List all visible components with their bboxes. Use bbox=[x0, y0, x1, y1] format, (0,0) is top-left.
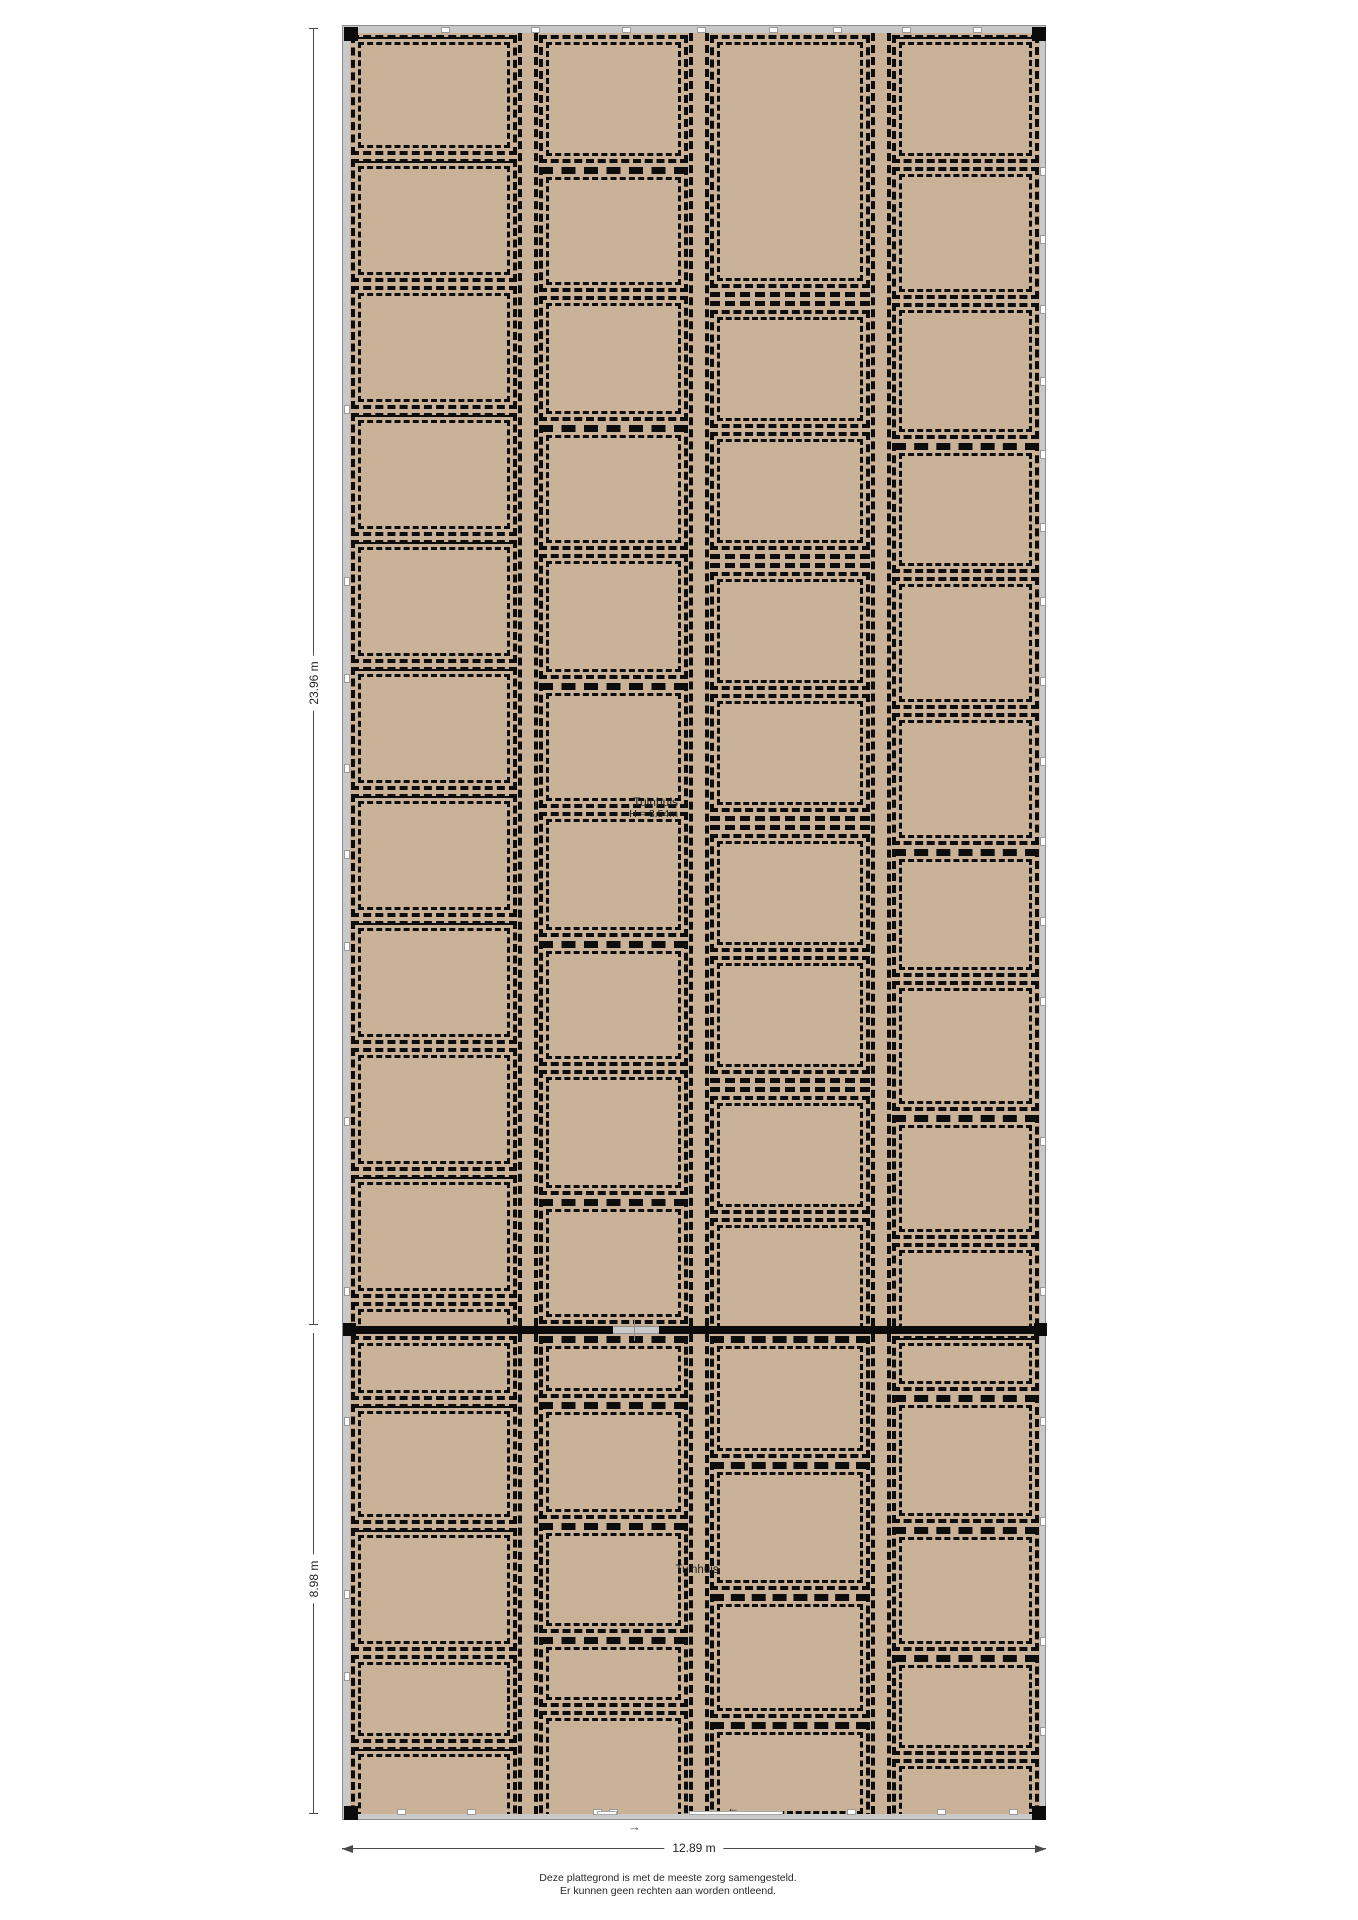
plot-cell bbox=[710, 694, 870, 812]
plot-cell bbox=[892, 167, 1039, 299]
wall-tick bbox=[1040, 1417, 1046, 1426]
plot-cell bbox=[710, 1218, 870, 1326]
wall-tick bbox=[1040, 305, 1046, 314]
divider-end-block bbox=[343, 1323, 356, 1336]
divider-end-block bbox=[1034, 1323, 1047, 1336]
wall-tick bbox=[467, 1809, 476, 1815]
plot-cell bbox=[892, 1336, 1039, 1391]
plot-cell bbox=[710, 1594, 870, 1718]
plot-cell bbox=[539, 35, 688, 163]
plot-cell bbox=[892, 713, 1039, 845]
wall-tick bbox=[697, 27, 706, 33]
plot-cell bbox=[539, 554, 688, 679]
plot-cell bbox=[892, 443, 1039, 573]
column-separator bbox=[518, 33, 538, 1326]
wall-tick bbox=[1040, 167, 1046, 176]
plot-cell bbox=[351, 1175, 517, 1298]
plot-cell bbox=[892, 1655, 1039, 1755]
plot-cell bbox=[710, 1336, 870, 1458]
wall-tick bbox=[344, 674, 350, 683]
wall-tick bbox=[531, 27, 540, 33]
wall-tick bbox=[937, 1809, 946, 1815]
room-label-tuinhuis-lower: Tuinhuis bbox=[675, 1564, 718, 1576]
plot-column bbox=[538, 33, 689, 1326]
plot-cell bbox=[710, 432, 870, 550]
dimension-label-bottom: 12.89 m bbox=[664, 1841, 723, 1855]
dimension-arrow-right-icon bbox=[1035, 1845, 1046, 1853]
plot-cell bbox=[351, 921, 517, 1044]
wall-opening bbox=[689, 1811, 783, 1815]
disclaimer-text: Deze plattegrond is met de meeste zorg s… bbox=[539, 1872, 796, 1898]
wall-tick bbox=[1040, 677, 1046, 686]
plot-cell bbox=[892, 577, 1039, 709]
wall-tick bbox=[397, 1809, 406, 1815]
wall-tick bbox=[1040, 917, 1046, 926]
plot-cell bbox=[892, 1243, 1039, 1326]
plot-cell bbox=[539, 1199, 688, 1324]
plot-column bbox=[350, 33, 518, 1326]
wall-tick bbox=[1040, 1287, 1046, 1296]
wall-tick bbox=[344, 764, 350, 773]
wall-tick bbox=[344, 850, 350, 859]
upper-section-grid bbox=[350, 33, 1040, 1326]
plot-cell bbox=[710, 834, 870, 952]
wall-tick bbox=[344, 405, 350, 414]
dimension-end-tick bbox=[309, 28, 318, 29]
plot-cell bbox=[351, 794, 517, 917]
wall-tick bbox=[1040, 523, 1046, 532]
wall-tick bbox=[902, 27, 911, 33]
corner-block bbox=[1032, 1806, 1046, 1820]
wall-tick bbox=[1040, 597, 1046, 606]
plot-cell bbox=[351, 159, 517, 282]
column-separator bbox=[518, 1334, 538, 1814]
wall-tick bbox=[1040, 1137, 1046, 1146]
wall-tick bbox=[344, 577, 350, 586]
plot-cell bbox=[351, 35, 517, 155]
plot-cell bbox=[351, 1302, 517, 1326]
plot-cell bbox=[539, 941, 688, 1066]
wall-tick bbox=[344, 942, 350, 951]
divider-wall bbox=[343, 1326, 1047, 1334]
plot-cell bbox=[710, 1462, 870, 1590]
plot-column bbox=[891, 1334, 1040, 1814]
wall-tick bbox=[344, 1590, 350, 1599]
dimension-label-left-lower: 8.98 m bbox=[305, 1555, 323, 1604]
plot-cell bbox=[539, 1523, 688, 1633]
column-separator bbox=[871, 1334, 891, 1814]
plot-cell bbox=[351, 1747, 517, 1814]
plot-cell bbox=[351, 667, 517, 790]
wall-tick bbox=[1040, 1637, 1046, 1646]
wall-tick bbox=[1009, 1809, 1018, 1815]
plot-cell bbox=[710, 1096, 870, 1214]
wall-tick bbox=[344, 1672, 350, 1681]
plot-cell bbox=[710, 956, 870, 1074]
plot-column bbox=[538, 1334, 689, 1814]
plot-cell bbox=[892, 1527, 1039, 1651]
plot-cell bbox=[351, 1655, 517, 1743]
plot-cell bbox=[892, 1395, 1039, 1523]
divider-door-tick bbox=[634, 1319, 635, 1341]
room-label-tuinhuis-upper: Tuinhuis H = 3.54m bbox=[629, 796, 678, 820]
wall-tick bbox=[1040, 377, 1046, 386]
wall-tick bbox=[1040, 757, 1046, 766]
plot-cell bbox=[892, 981, 1039, 1111]
plot-band bbox=[710, 1078, 870, 1092]
plot-cell bbox=[539, 1336, 688, 1398]
disclaimer-line-2: Er kunnen geen rechten aan worden ontlee… bbox=[539, 1885, 796, 1898]
wall-tick bbox=[769, 27, 778, 33]
wall-tick bbox=[622, 27, 631, 33]
plot-column bbox=[350, 1334, 518, 1814]
plot-cell bbox=[539, 683, 688, 808]
wall-tick bbox=[973, 27, 982, 33]
plot-cell bbox=[539, 1402, 688, 1519]
corner-block bbox=[1032, 27, 1046, 41]
corner-block bbox=[344, 27, 358, 41]
floorplan-outline: ← bbox=[342, 25, 1046, 1820]
divider-door-gap bbox=[613, 1326, 659, 1334]
plot-band bbox=[710, 816, 870, 830]
plot-cell bbox=[892, 1115, 1039, 1239]
plot-cell bbox=[539, 1070, 688, 1195]
plot-column bbox=[709, 33, 871, 1326]
wall-tick bbox=[1040, 837, 1046, 846]
plot-cell bbox=[539, 1711, 688, 1814]
plot-cell bbox=[892, 1759, 1039, 1814]
plot-cell bbox=[892, 303, 1039, 439]
wall-opening bbox=[597, 1811, 617, 1815]
plot-band bbox=[710, 292, 870, 306]
plot-cell bbox=[351, 1048, 517, 1171]
plot-cell bbox=[892, 849, 1039, 977]
plot-cell bbox=[351, 540, 517, 663]
dimension-end-tick bbox=[309, 1324, 318, 1325]
plot-cell bbox=[710, 572, 870, 690]
plot-cell bbox=[710, 310, 870, 428]
wall-tick bbox=[344, 1287, 350, 1296]
plot-cell bbox=[892, 35, 1039, 163]
wall-tick bbox=[1040, 1517, 1046, 1526]
disclaimer-line-1: Deze plattegrond is met de meeste zorg s… bbox=[539, 1872, 796, 1885]
wall-tick bbox=[344, 1117, 350, 1126]
dimension-label-left-upper: 23.96 m bbox=[305, 655, 323, 710]
wall-tick bbox=[344, 1417, 350, 1426]
entrance-arrow-below-icon: → bbox=[628, 1822, 641, 1832]
wall-tick bbox=[1040, 997, 1046, 1006]
corner-block bbox=[344, 1806, 358, 1820]
plot-cell bbox=[351, 1336, 517, 1400]
plot-cell bbox=[539, 296, 688, 421]
wall-tick bbox=[847, 1809, 856, 1815]
plot-cell bbox=[710, 35, 870, 288]
plot-cell bbox=[539, 812, 688, 937]
wall-tick bbox=[833, 27, 842, 33]
plot-cell bbox=[539, 1637, 688, 1707]
plot-cell bbox=[539, 425, 688, 550]
wall-tick bbox=[1040, 235, 1046, 244]
plot-cell bbox=[351, 286, 517, 409]
wall-tick bbox=[441, 27, 450, 33]
plot-cell bbox=[351, 1404, 517, 1524]
floorplan-canvas: 23.96 m 8.98 m 12.89 m ← Tuinhuis H = 3.… bbox=[0, 0, 1358, 1920]
column-separator bbox=[871, 33, 891, 1326]
wall-tick bbox=[1040, 450, 1046, 459]
plot-cell bbox=[351, 413, 517, 536]
dimension-end-tick bbox=[309, 1813, 318, 1814]
room-label-name: Tuinhuis bbox=[629, 796, 678, 808]
wall-tick bbox=[1040, 1727, 1046, 1736]
plot-column bbox=[709, 1334, 871, 1814]
room-label-height: H = 3.54m bbox=[629, 808, 678, 820]
plot-band bbox=[710, 554, 870, 568]
column-separator bbox=[689, 33, 709, 1326]
plot-column bbox=[891, 33, 1040, 1326]
dimension-arrow-left-icon bbox=[342, 1845, 353, 1853]
plot-cell bbox=[351, 1528, 517, 1651]
plot-cell bbox=[539, 167, 688, 292]
